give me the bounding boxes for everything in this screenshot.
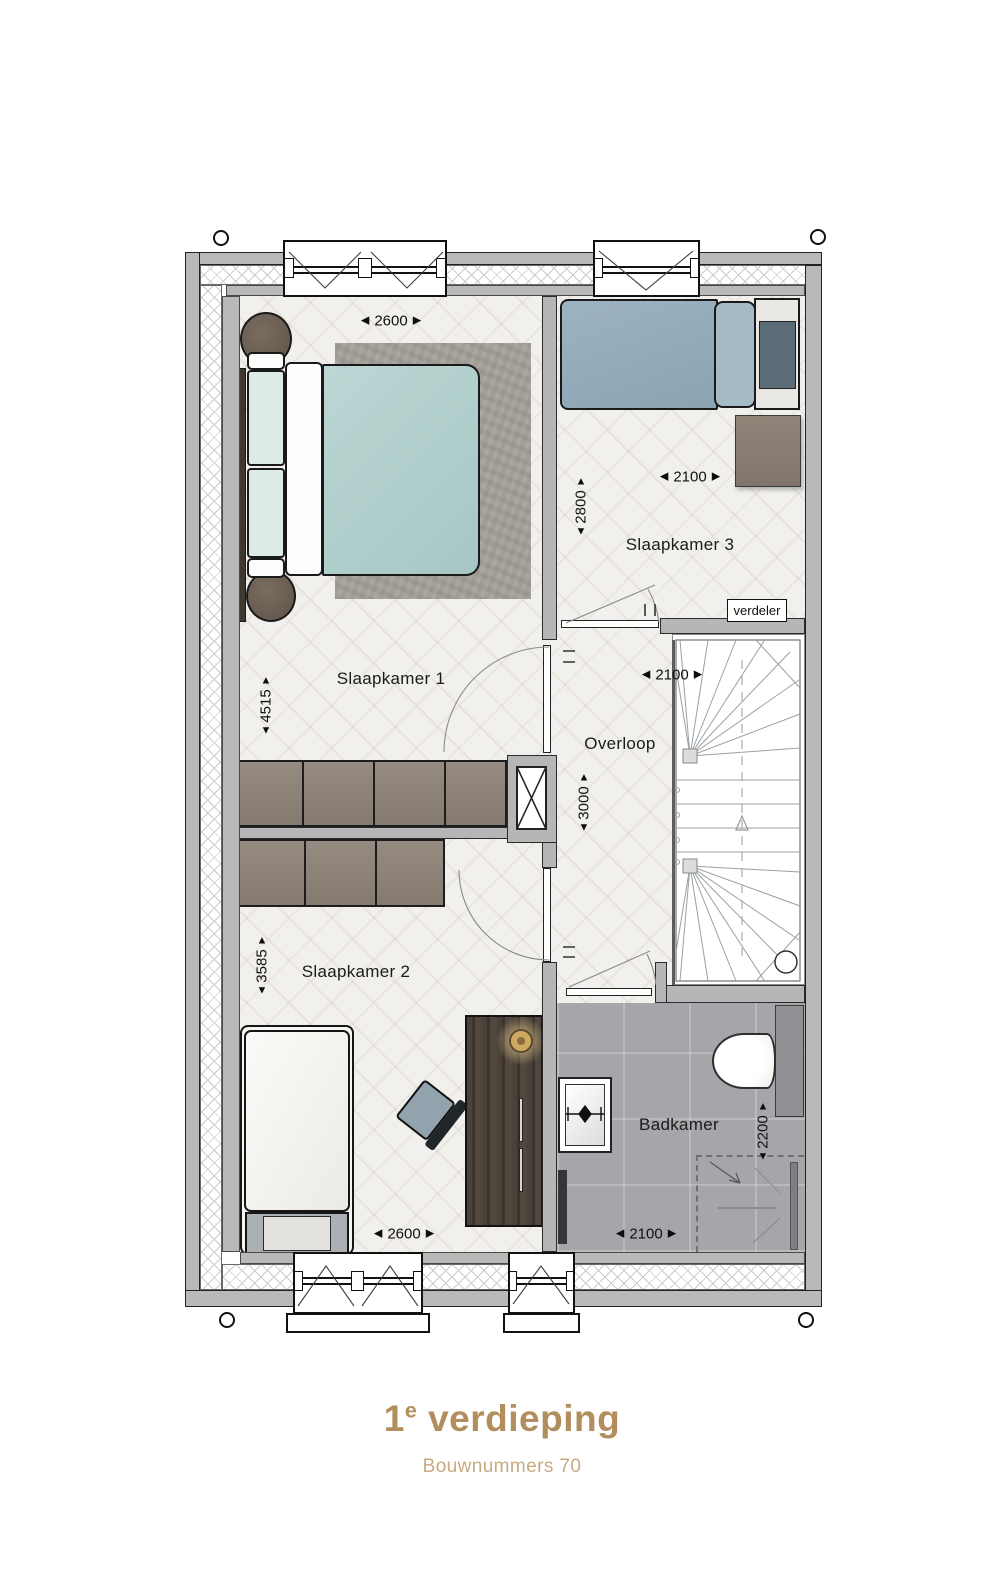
arrow-down-icon: ▼ [579, 823, 590, 834]
room-label-badkamer: Badkamer [639, 1115, 719, 1135]
arrow-up-icon: ▲ [579, 772, 590, 783]
double-bed-duvet [322, 364, 480, 576]
exterior-wall-inner [222, 296, 240, 1252]
page-subtitle: Bouwnummers 70 [0, 1456, 1004, 1478]
verdeler-label: verdeler [734, 603, 781, 618]
wall-stub [655, 962, 667, 1003]
arrow-left-icon: ◀ [642, 670, 650, 681]
room-label-slaapkamer-3: Slaapkamer 3 [626, 535, 735, 555]
bed-duvet [244, 1030, 350, 1212]
arrow-down-icon: ▼ [758, 1152, 769, 1163]
arrow-right-icon: ▶ [426, 1229, 434, 1240]
window-sill [503, 1313, 580, 1333]
window-sill [286, 1313, 430, 1333]
window-mullion [358, 258, 372, 278]
room-label-slaapkamer-1: Slaapkamer 1 [337, 669, 446, 689]
window-jamb [294, 1271, 303, 1291]
bed-blanket-fold [263, 1216, 331, 1251]
window-jamb [284, 258, 294, 278]
window-mullion [351, 1271, 364, 1291]
towel-radiator [558, 1170, 567, 1244]
caption-block: 1e verdieping Bouwnummers 70 [0, 1398, 1004, 1478]
shaft [516, 766, 547, 830]
arrow-right-icon: ▶ [712, 472, 720, 483]
bed-pillow [247, 558, 285, 578]
exterior-wall-outer [185, 252, 200, 1307]
window-jamb [436, 258, 446, 278]
exterior-wall-right [805, 265, 822, 1307]
wardrobe-row [238, 760, 507, 827]
arrow-right-icon: ▶ [694, 670, 702, 681]
desk-handle [519, 1148, 523, 1192]
arrow-left-icon: ◀ [616, 1229, 624, 1240]
arrow-up-icon: ▲ [758, 1101, 769, 1112]
grid-marker-icon [219, 1312, 235, 1328]
wall [658, 985, 805, 1003]
page-title: 1e verdieping [0, 1398, 1004, 1440]
arrow-left-icon: ◀ [361, 316, 369, 327]
dimension-4515: ▲ 4515 ▼ [258, 675, 275, 736]
arrow-up-icon: ▲ [261, 675, 272, 686]
shower-wall-panel [775, 1005, 804, 1117]
dimension-2800: ▲ 2800 ▼ [573, 476, 590, 537]
floorplan-page: Slaapkamer 1 Slaapkamer 3 Overloop Slaap… [0, 0, 1004, 1594]
window-glazing [600, 272, 693, 274]
wardrobe-row [238, 839, 445, 907]
arrow-down-icon: ▼ [576, 527, 587, 538]
arrow-right-icon: ▶ [413, 316, 421, 327]
bed-pillow [247, 352, 285, 370]
dimension-3585: ▲ 3585 ▼ [254, 935, 271, 996]
dimension-2100-sk3: ◀ 2100 ▶ [660, 469, 720, 486]
dresser [735, 415, 801, 487]
grid-marker-icon [810, 229, 826, 245]
exterior-wall-outer [185, 252, 822, 265]
door-leaf [543, 645, 551, 753]
desk-handle [519, 1098, 523, 1142]
window [593, 240, 700, 297]
bed-frame-insert [759, 321, 796, 389]
dimension-2600-top: ◀ 2600 ▶ [361, 313, 421, 330]
stair-railing [672, 640, 675, 985]
dimension-2600-bottom: ◀ 2600 ▶ [374, 1226, 434, 1243]
single-bed-duvet [560, 299, 718, 410]
arrow-down-icon: ▼ [257, 986, 268, 997]
grid-marker-icon [798, 1312, 814, 1328]
arrow-down-icon: ▼ [261, 726, 272, 737]
bed-pillow [247, 370, 285, 466]
window-glazing [514, 1277, 569, 1279]
door-leaf [543, 868, 551, 962]
stairwell-floor [672, 634, 805, 985]
verdeler-box: verdeler [727, 599, 787, 622]
dimension-2200: ▲ 2200 ▼ [755, 1101, 772, 1162]
exterior-wall-insulation [200, 285, 222, 1290]
door-leaf [566, 988, 652, 996]
arrow-up-icon: ▲ [257, 935, 268, 946]
washbasin-bowl [565, 1084, 605, 1146]
toilet [712, 1033, 776, 1089]
room-label-slaapkamer-2: Slaapkamer 2 [302, 962, 411, 982]
shower-area [696, 1155, 804, 1252]
bed-pillow [714, 301, 756, 408]
desk-lamp-center [517, 1037, 525, 1045]
window-glazing [600, 266, 693, 268]
window-jamb [509, 1271, 517, 1291]
arrow-left-icon: ◀ [374, 1229, 382, 1240]
arrow-right-icon: ▶ [668, 1229, 676, 1240]
door-leaf [561, 620, 659, 628]
exterior-wall-outer [185, 1290, 822, 1307]
shower-radiator [790, 1162, 798, 1250]
window-jamb [594, 258, 603, 278]
window-jamb [413, 1271, 422, 1291]
window-jamb [690, 258, 699, 278]
grid-marker-icon [213, 230, 229, 246]
window-glazing [514, 1283, 569, 1285]
bed-sheet-fold [285, 362, 323, 576]
wall [542, 296, 557, 640]
arrow-up-icon: ▲ [576, 476, 587, 487]
dimension-3000: ▲ 3000 ▼ [576, 772, 593, 833]
room-label-overloop: Overloop [584, 734, 655, 754]
window-jamb [566, 1271, 574, 1291]
wall [542, 962, 557, 1252]
dimension-2100-overloop: ◀ 2100 ▶ [642, 667, 702, 684]
arrow-left-icon: ◀ [660, 472, 668, 483]
bed-pillow [247, 468, 285, 558]
dimension-2100-badkamer: ◀ 2100 ▶ [616, 1226, 676, 1243]
